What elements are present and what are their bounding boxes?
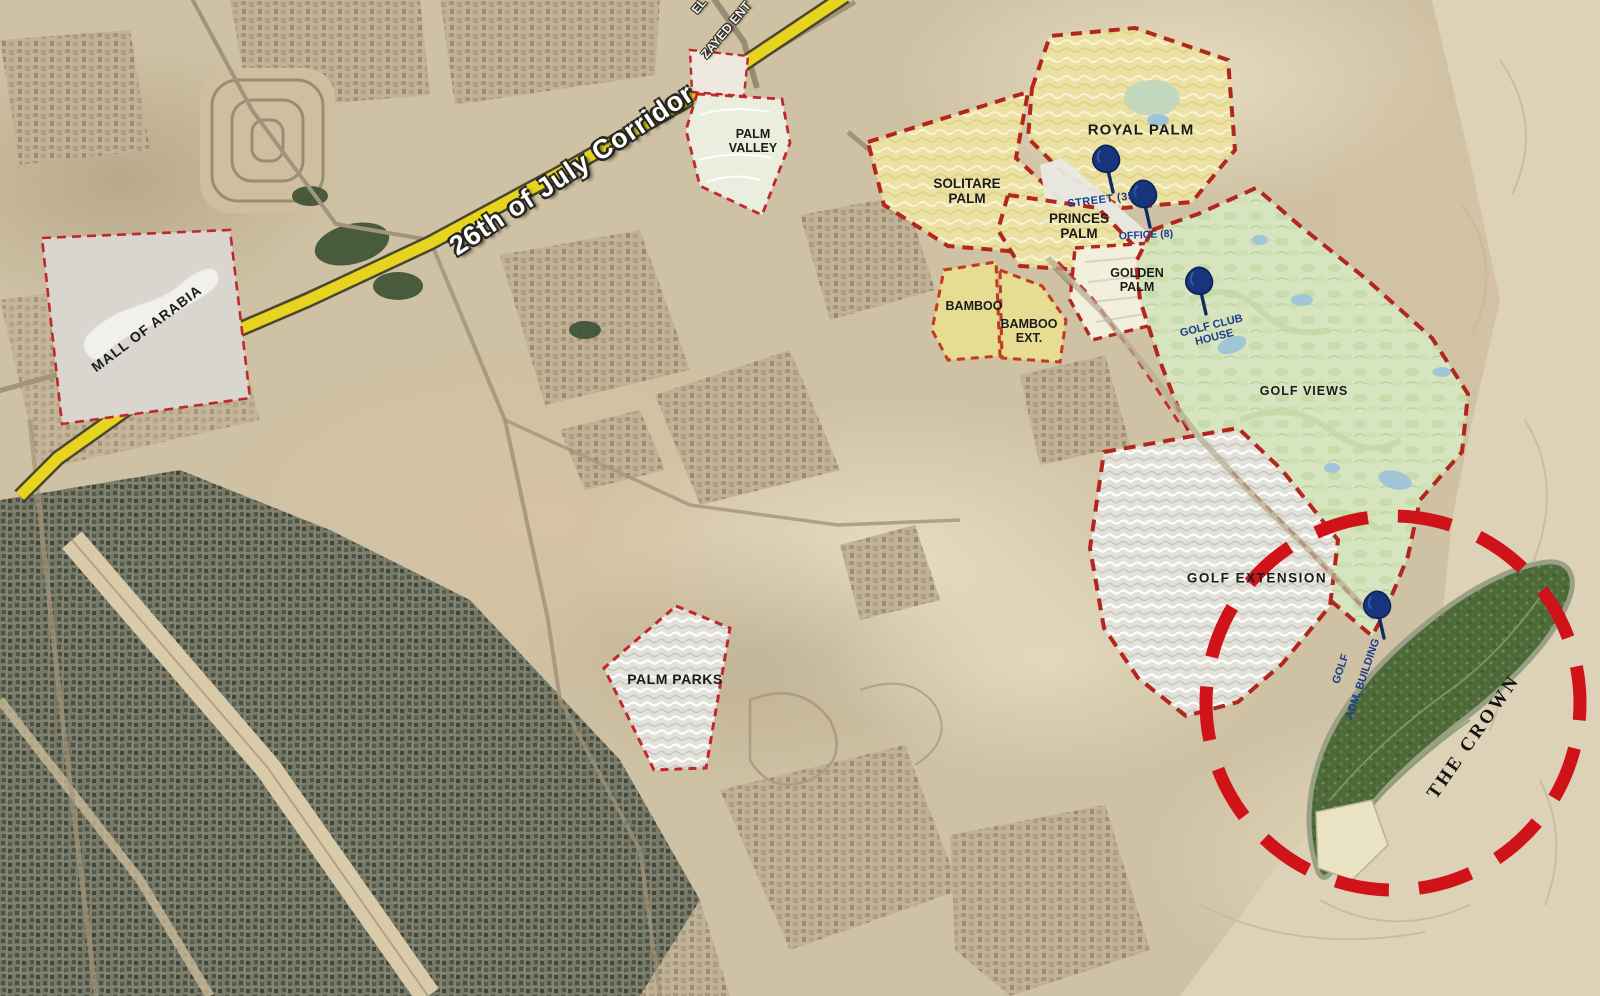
masterplan-map: 26th of July Corridor EL ZAYED ENT MALL … (0, 0, 1600, 996)
zone-label-princes-palm: PRINCES PALM (1033, 211, 1125, 241)
zone-label-palm-valley: PALM VALLEY (713, 127, 793, 155)
zone-north-parcel (690, 50, 748, 96)
zone-label-golf-views: GOLF VIEWS (1260, 384, 1348, 398)
zone-label-golden-palm: GOLDEN PALM (1097, 266, 1177, 294)
zone-label-golf-extension: GOLF EXTENSION (1187, 570, 1327, 585)
zone-label-solitare-palm: SOLITARE PALM (915, 176, 1019, 206)
zone-label-bamboo-ext: BAMBOO EXT. (991, 317, 1067, 345)
satellite-map-graphics (0, 0, 1600, 996)
zone-label-palm-parks: PALM PARKS (627, 672, 722, 688)
zone-label-bamboo: BAMBOO (946, 299, 1003, 313)
zone-label-royal-palm: ROYAL PALM (1088, 123, 1194, 140)
